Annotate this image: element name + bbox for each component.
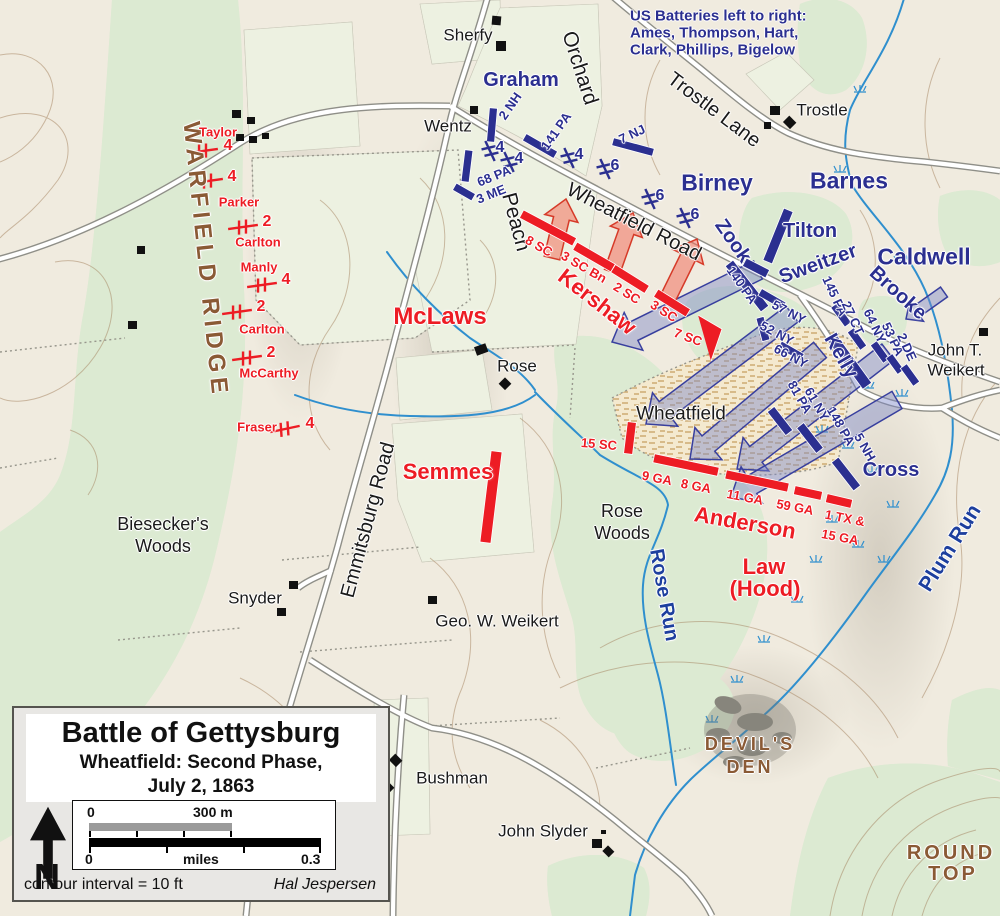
conf-batt-mccarthy: McCarthy (239, 367, 298, 380)
place-bieseckers-2: Woods (135, 537, 191, 555)
scale-mi-zero: 0 (85, 851, 93, 867)
scale-mi-max: 0.3 (301, 851, 320, 867)
map-subtitle-2: July 2, 1863 (26, 776, 376, 798)
map-title: Battle of Gettysburg (26, 717, 376, 750)
place-john-t-weikert-2: Weikert (927, 362, 984, 379)
scale-miles-bar (89, 838, 321, 847)
conf-batt-manly: Manly (241, 261, 278, 274)
place-rose-woods-2: Woods (594, 524, 650, 542)
union-barnes: Barnes (810, 170, 888, 193)
author-credit: Hal Jespersen (274, 876, 376, 894)
legend-box: Battle of Gettysburg Wheatfield: Second … (12, 706, 390, 902)
scale-m-max: 300 m (193, 804, 233, 820)
us-battery-count: 4 (515, 151, 524, 167)
terrain-round-top-2: TOP (928, 864, 978, 884)
scale-m-zero: 0 (87, 804, 95, 820)
gettysburg-wheatfield-map: #woodsShapes path{fill:#dcead2;} #orchSh… (0, 0, 1000, 916)
conf-batt-carlton-1: Carlton (235, 236, 281, 249)
us-batteries-note-line3: Clark, Phillips, Bigelow (630, 42, 795, 59)
place-john-t-weikert-1: John T. (928, 342, 983, 359)
place-john-slyder: John Slyder (498, 823, 588, 840)
cs-battery-count: 4 (228, 169, 237, 185)
us-batteries-note-line1: US Batteries left to right: (630, 8, 807, 25)
conf-batt-carlton-2: Carlton (239, 323, 285, 336)
cs-battery-count: 4 (224, 138, 233, 154)
us-batteries-note-line2: Ames, Thompson, Hart, (630, 25, 798, 42)
us-battery-count: 6 (656, 188, 665, 204)
conf-batt-parker: Parker (219, 196, 259, 209)
union-graham: Graham (483, 70, 559, 90)
scale-bar: 0 300 m 0 miles 0.3 (72, 800, 336, 870)
conf-mclaws: McLaws (393, 305, 486, 329)
conf-reg-15sc: 15 SC (580, 436, 617, 452)
cs-battery-count: 2 (257, 299, 266, 315)
place-rose-woods-1: Rose (601, 502, 643, 520)
map-subtitle-1: Wheatfield: Second Phase, (26, 752, 376, 774)
place-rose: Rose (497, 358, 537, 375)
union-cross: Cross (863, 460, 920, 480)
union-tilton: Tilton (783, 221, 837, 241)
legend-header: Battle of Gettysburg Wheatfield: Second … (26, 714, 376, 802)
union-birney: Birney (681, 172, 753, 195)
us-battery-count: 4 (496, 140, 505, 156)
conf-semmes: Semmes (403, 461, 494, 483)
conf-law-1: Law (743, 556, 786, 578)
contour-interval-note: contour interval = 10 ft (24, 876, 183, 894)
place-bushman: Bushman (416, 770, 488, 787)
cs-battery-count: 4 (282, 272, 291, 288)
terrain-devils-den-1: DEVIL'S (705, 735, 795, 753)
us-battery-count: 4 (575, 147, 584, 163)
place-geo-weikert: Geo. W. Weikert (435, 613, 558, 630)
conf-batt-fraser: Fraser (237, 421, 277, 434)
place-wentz: Wentz (424, 118, 472, 135)
place-bieseckers-1: Biesecker's (117, 515, 208, 533)
place-wheatfield: Wheatfield (636, 405, 726, 424)
us-battery-count: 6 (691, 207, 700, 223)
place-sherfy: Sherfy (443, 27, 492, 44)
terrain-devils-den-2: DEN (726, 758, 773, 776)
place-trostle: Trostle (796, 102, 847, 119)
cs-battery-count: 2 (263, 214, 272, 230)
cs-battery-count: 4 (306, 416, 315, 432)
us-battery-count: 6 (611, 158, 620, 174)
union-caldwell: Caldwell (877, 246, 970, 269)
place-snyder: Snyder (228, 590, 282, 607)
terrain-round-top-1: ROUND (907, 843, 995, 863)
cs-battery-count: 2 (267, 345, 276, 361)
scale-meters-bar (89, 823, 232, 831)
conf-law-2: (Hood) (730, 578, 801, 600)
scale-mi-unit: miles (183, 851, 219, 867)
